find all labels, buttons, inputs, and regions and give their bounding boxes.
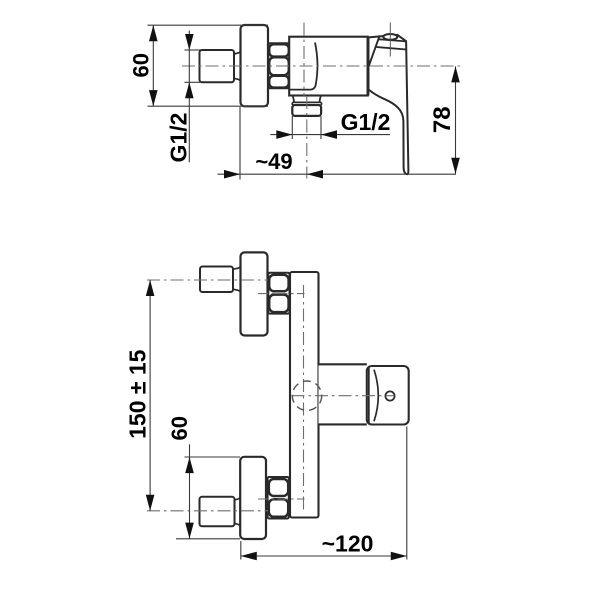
svg-text:~49: ~49 bbox=[255, 149, 292, 174]
svg-text:~120: ~120 bbox=[322, 531, 374, 557]
svg-text:78: 78 bbox=[429, 106, 456, 133]
svg-text:150 ± 15: 150 ± 15 bbox=[125, 349, 151, 439]
svg-text:G1/2: G1/2 bbox=[341, 109, 391, 135]
svg-text:G1/2: G1/2 bbox=[166, 113, 192, 163]
svg-text:60: 60 bbox=[167, 416, 192, 440]
svg-text:60: 60 bbox=[129, 53, 154, 77]
